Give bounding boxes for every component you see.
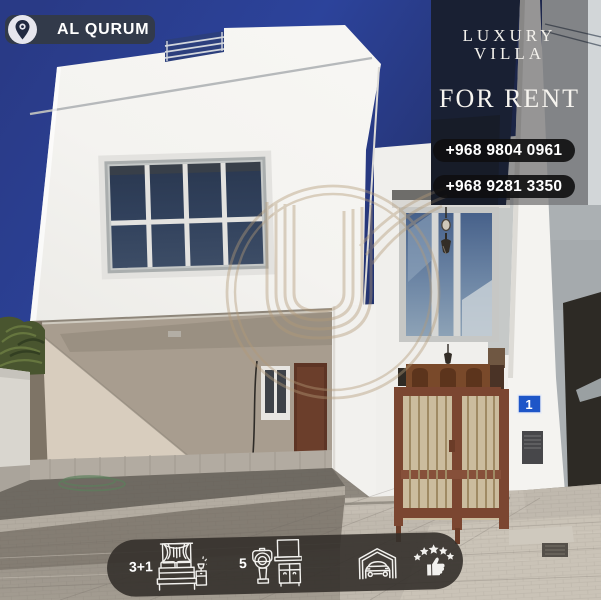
svg-text:1: 1 <box>525 397 532 412</box>
